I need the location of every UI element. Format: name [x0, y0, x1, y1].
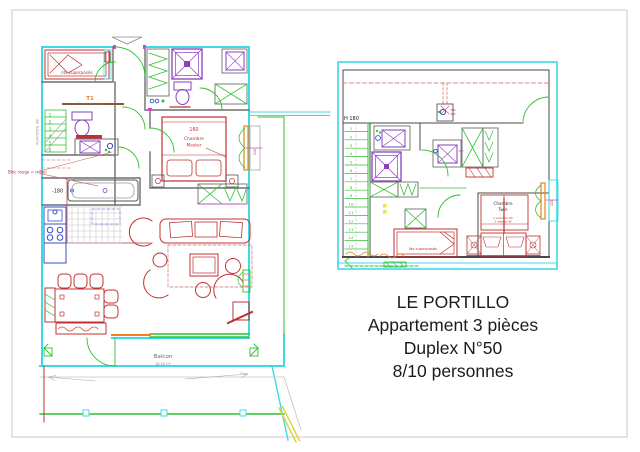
- upper-bunk-label: lits superposés: [409, 246, 438, 251]
- window-dim-2: 115: [550, 200, 554, 206]
- twin-room-label-2: Twin: [497, 207, 507, 212]
- svg-text:4: 4: [49, 134, 52, 140]
- svg-text:10: 10: [349, 202, 354, 207]
- twin-note-2: 2 matelas 90: [495, 220, 512, 224]
- svg-text:11: 11: [349, 210, 354, 215]
- placo-note: PLACOSTIL 98: [36, 119, 40, 145]
- title-line-3: Duplex N°50: [404, 338, 503, 358]
- plan-sheet: lits superposés T1 (lit haut et lit bas)…: [0, 0, 640, 452]
- t1-note: (lit haut et lit bas): [77, 102, 104, 106]
- mirror-note: Bloc rouge = miroir: [8, 170, 47, 175]
- bed-size-label: 160: [189, 127, 198, 133]
- title-line-1: LE PORTILLO: [397, 292, 510, 312]
- svg-text:1: 1: [49, 113, 52, 119]
- height-note: H 180: [344, 116, 359, 122]
- svg-text:5: 5: [49, 141, 52, 147]
- svg-text:6: 6: [49, 148, 52, 154]
- window-dim-1: 115: [253, 149, 257, 155]
- svg-text:12: 12: [349, 218, 354, 223]
- bunk-bed-label: lits superposés: [61, 70, 92, 75]
- balcony-label: Balcon: [154, 354, 173, 360]
- twin-note-1: 2 sommiers 90: [493, 216, 513, 220]
- master-room-label-1: Chambre: [184, 136, 204, 142]
- bath-level-label: -180: [52, 189, 63, 195]
- balcony-area-label: 18,50 m²: [155, 362, 172, 366]
- svg-text:3: 3: [49, 127, 52, 133]
- svg-text:13: 13: [349, 227, 354, 232]
- twin-room-label-1: Chambre: [493, 201, 513, 206]
- floor-plan-canvas: lits superposés T1 (lit haut et lit bas)…: [0, 0, 640, 452]
- title-line-4: 8/10 personnes: [393, 361, 514, 381]
- svg-text:15: 15: [349, 244, 354, 249]
- title-line-2: Appartement 3 pièces: [368, 315, 538, 335]
- mirror-block: [76, 135, 102, 139]
- master-room-label-2: Master: [187, 143, 202, 149]
- svg-text:14: 14: [349, 235, 354, 240]
- svg-text:2: 2: [49, 120, 52, 126]
